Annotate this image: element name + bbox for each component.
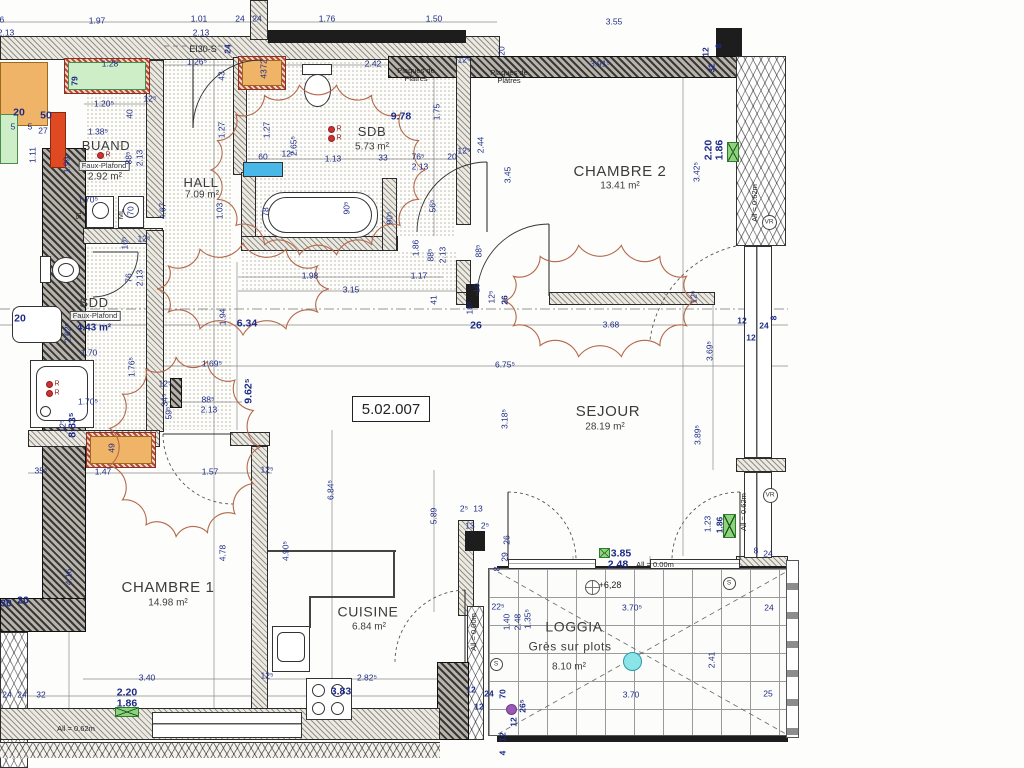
stove	[306, 678, 352, 720]
room-name: CUISINE	[338, 604, 399, 619]
detector-r-label: R	[336, 135, 341, 142]
dimension-label: 24	[235, 14, 244, 23]
dimension-label: 2.20	[703, 140, 714, 160]
wall-segment	[241, 236, 398, 251]
dimension-label: 9.62⁵	[243, 378, 254, 403]
wall-segment	[388, 56, 740, 78]
detector-r-label: R	[54, 390, 59, 397]
washer-drum	[123, 202, 139, 218]
dimension-label: 26	[502, 535, 511, 544]
neighbor-furniture	[50, 112, 66, 168]
dimension-label: 1.97	[89, 16, 106, 25]
green-hatched-box	[64, 58, 150, 94]
wall-segment	[716, 28, 742, 56]
window	[508, 559, 596, 569]
floor-stipple	[164, 60, 233, 430]
burner	[331, 702, 344, 715]
drain-symbol	[623, 652, 642, 671]
burner	[331, 684, 344, 697]
room-name: CHAMBRE 2	[574, 164, 667, 180]
detector-r-label: R	[105, 152, 110, 159]
dimension-label: 27	[38, 126, 47, 135]
wall-segment	[467, 606, 484, 740]
box-fill	[68, 62, 146, 90]
loggia-tiles	[488, 568, 788, 736]
window	[744, 246, 772, 458]
toilet-bowl-sdd-inner	[58, 263, 74, 277]
floor-stipple	[241, 251, 456, 292]
plan-reference-box: 5.02.007	[352, 396, 430, 422]
dimension-label: 6.34	[237, 318, 257, 329]
dimension-label: 1.47	[95, 467, 112, 476]
room-area: 13.41 m²	[600, 182, 639, 193]
s-label: S	[494, 661, 498, 668]
dimension-label: 26	[470, 320, 482, 331]
dimension-label: 1.57	[202, 467, 219, 476]
room-area: 28.19 m²	[585, 423, 624, 434]
dimension-label: 3.55	[606, 17, 623, 26]
dimension-label: 2.82⁵	[357, 673, 377, 682]
dimension-label: 26	[500, 295, 509, 304]
floor-plan: BUANDFaux-Plafond2.92 m²HALL7.09 m²SDB5.…	[0, 0, 1024, 768]
wall-segment	[736, 458, 786, 472]
dimension-label: 3.40	[139, 673, 156, 682]
smoke-detector-dot	[97, 152, 104, 159]
box-fill	[242, 60, 282, 86]
window	[152, 712, 302, 738]
dimension-label: 13	[473, 504, 482, 513]
bathtub-inner	[268, 197, 372, 233]
neighbor-furniture	[0, 114, 18, 164]
dimension-label: 2.20	[117, 687, 137, 698]
dimension-label: 3.45	[503, 167, 512, 184]
dimension-label: 4.78	[218, 545, 227, 562]
dimension-label: 4	[498, 751, 507, 756]
wall-segment	[437, 662, 469, 740]
dimension-label: 1.86	[714, 140, 725, 160]
window	[650, 559, 740, 569]
counter-edge	[393, 550, 395, 598]
wall-segment	[268, 30, 466, 43]
wall-segment	[170, 378, 182, 408]
dimension-label: 3.68	[603, 320, 620, 329]
dimension-label: 1.76	[0, 15, 4, 24]
dimension-label: 2⁵	[460, 504, 468, 513]
dimension-label: 1.01	[191, 14, 208, 23]
dimension-label: 32	[36, 690, 45, 699]
dimension-label: 5.89	[429, 508, 438, 525]
room-name: CHAMBRE 1	[122, 580, 215, 596]
vr-label: VR	[764, 219, 773, 226]
toilet-bowl-sdb-inner	[310, 80, 325, 100]
wall-segment	[456, 57, 471, 225]
wall-segment	[146, 230, 164, 432]
wall-segment	[0, 742, 440, 758]
shower-drain	[40, 406, 51, 417]
dimension-label: 6.75⁵	[495, 360, 515, 369]
window	[744, 472, 772, 558]
dimension-label: 3.85	[611, 548, 631, 559]
dimension-label: 3.89⁵	[693, 425, 702, 445]
counter-edge	[268, 550, 396, 552]
green-window-marker	[727, 142, 739, 162]
dimension-label: 1.76	[319, 14, 336, 23]
washbasin-sdb	[243, 162, 283, 177]
room-name: SEJOUR	[576, 404, 640, 420]
balcony-railing	[786, 560, 799, 738]
washbasin-sdd	[12, 306, 62, 343]
dimension-label: 1.23	[703, 516, 712, 533]
wall-segment	[251, 446, 268, 710]
dimension-label: 41	[429, 295, 438, 304]
dimension-label: 1.50	[426, 14, 443, 23]
dimension-label: 2.44	[476, 137, 485, 154]
detector-r-label: R	[336, 126, 341, 133]
dimension-label: 2⁵	[481, 521, 489, 530]
level-mark-symbol	[585, 580, 600, 595]
wall-segment	[549, 292, 715, 305]
wall-segment	[382, 178, 397, 251]
smoke-detector-dot	[328, 135, 335, 142]
toilet-tank-sdd	[40, 256, 51, 283]
orange-hatched-box	[86, 432, 156, 468]
s-label: S	[727, 580, 731, 587]
wall-segment	[466, 284, 479, 308]
dimension-label: 3.18⁵	[500, 409, 509, 429]
dimension-label: 3.42⁵	[692, 162, 701, 182]
wall-segment	[465, 531, 485, 551]
vr-label: VR	[765, 492, 774, 499]
washer-drum	[92, 202, 109, 219]
box-fill	[90, 436, 152, 464]
burner	[312, 702, 325, 715]
green-window-marker	[599, 548, 610, 558]
dimension-label: 88⁵	[474, 245, 483, 258]
floor-stipple	[86, 246, 146, 430]
wall-segment	[736, 56, 786, 246]
dimension-label: 1.11	[28, 147, 37, 163]
smoke-detector-dot	[46, 381, 53, 388]
orange-hatched-box	[238, 56, 286, 90]
green-window-marker	[723, 514, 736, 538]
kitchen-sink-inner	[277, 632, 305, 662]
dimension-label: 12⁵	[487, 291, 496, 304]
room-area: 14.98 m²	[148, 599, 187, 610]
smoke-detector-dot	[328, 126, 335, 133]
smoke-detector-dot	[46, 390, 53, 397]
wall-segment	[0, 598, 86, 632]
counter-edge	[309, 596, 311, 628]
detector-r-label: R	[54, 381, 59, 388]
green-window-marker	[115, 707, 139, 717]
purple-outlet-dot	[506, 704, 517, 715]
room-area: 6.84 m²	[352, 623, 386, 634]
dimension-label: 3.69⁵	[705, 341, 714, 361]
counter-edge	[310, 596, 395, 598]
dimension-label: 6.84⁵	[326, 480, 335, 500]
burner	[312, 684, 325, 697]
wall-segment	[230, 432, 270, 446]
wall-segment	[250, 0, 268, 40]
